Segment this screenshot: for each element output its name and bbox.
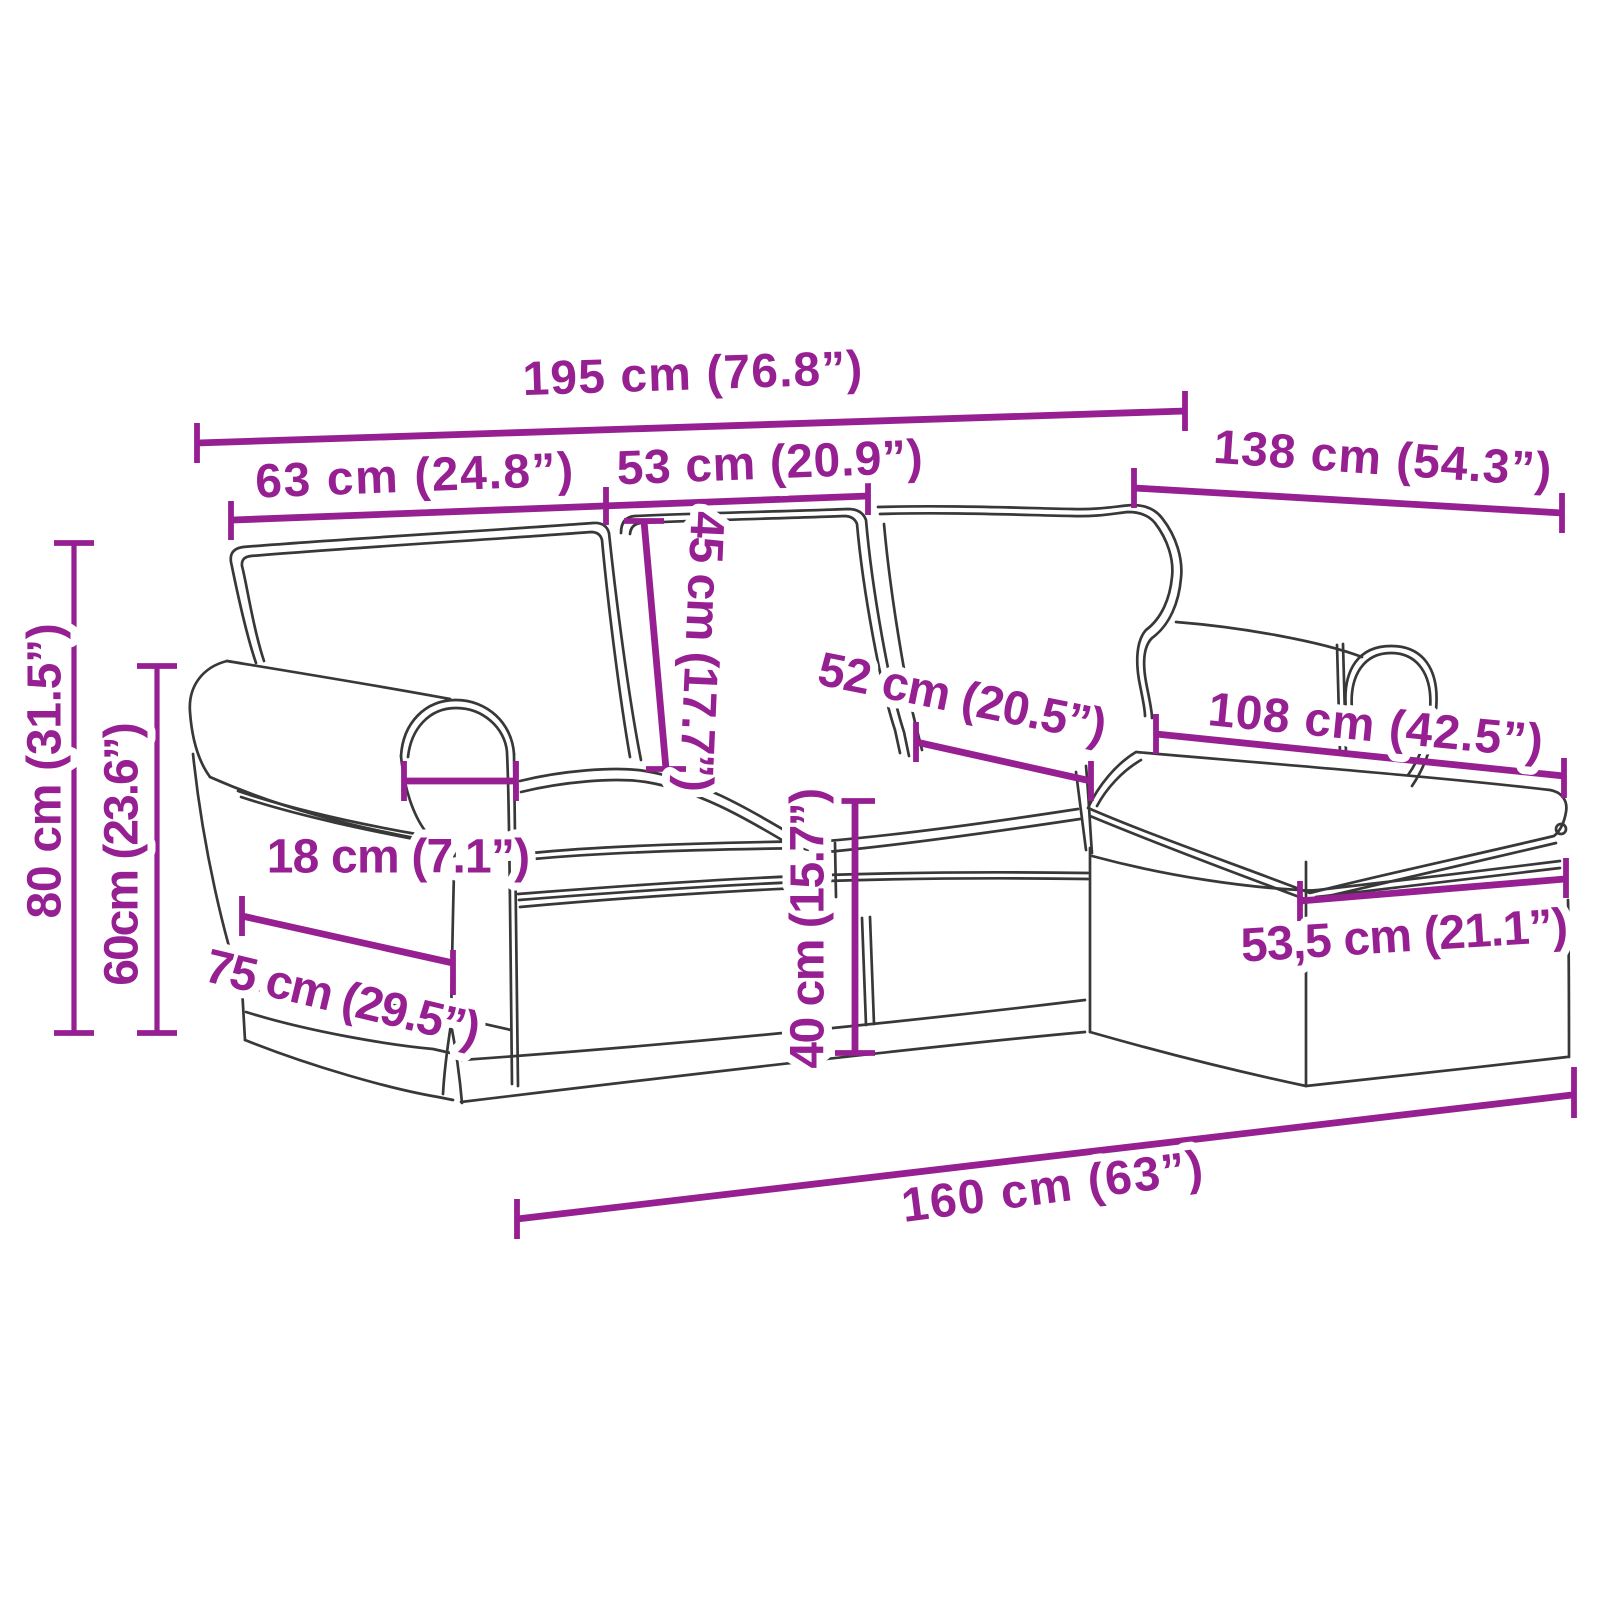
svg-text:195 cm (76.8”): 195 cm (76.8”) [522,342,865,406]
svg-text:18 cm (7.1”): 18 cm (7.1”) [267,831,530,884]
svg-text:60cm (23.6”): 60cm (23.6”) [96,724,149,986]
svg-text:40 cm (15.7”): 40 cm (15.7”) [782,789,835,1068]
svg-text:80 cm (31.5”): 80 cm (31.5”) [19,624,72,919]
